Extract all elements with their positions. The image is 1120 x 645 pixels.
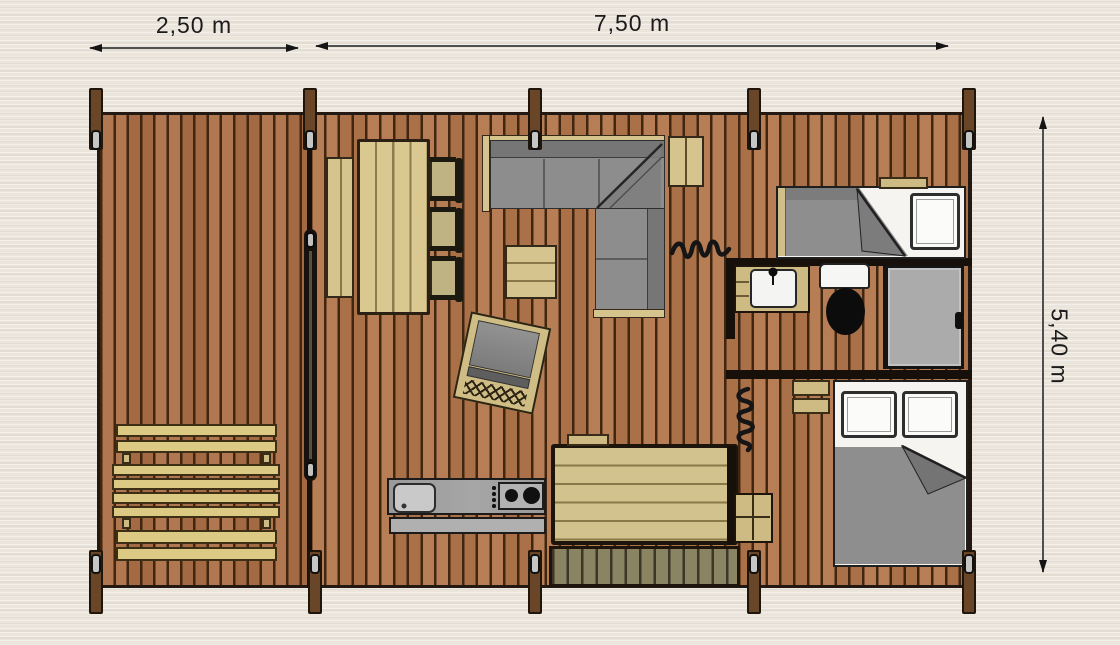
sofa-frame-end [593,309,665,318]
chair-arm [430,157,456,162]
table-slat [112,492,280,504]
door-handle [306,462,315,478]
door-rail [309,251,312,459]
post-bracket [964,554,974,574]
dining-bench [326,157,354,298]
corner-sofa-chaise [595,209,665,311]
pillow [841,391,897,438]
post [747,550,761,614]
dining-chair [430,160,461,198]
bed-headboard [778,188,786,256]
hob-knob [492,486,496,490]
chair-arm [430,196,456,201]
wall-cabinet [668,136,704,187]
arrow-right-icon [936,42,949,50]
post-bracket [310,554,320,574]
arrow-left-icon [89,44,102,52]
picnic-support [262,453,271,464]
table-slat-line [507,280,555,282]
bench-seam [340,159,342,296]
arrow-down-icon [1039,560,1047,573]
bench-slat [116,440,277,453]
bedside-shelf [879,177,928,189]
toilet [826,288,865,335]
dining-table [357,139,430,315]
floor-plan: 2,50 m 7,50 m 5,40 m [0,0,1120,645]
depth-label: 5,40 m [1046,291,1073,403]
washstand [734,265,810,313]
washstand-slat [736,295,749,297]
burner [505,489,518,502]
corner-sofa [490,140,665,209]
post [89,88,103,150]
bench-slat [116,424,277,437]
table-slat [112,478,280,490]
deck-width-label: 2,50 m [90,12,298,39]
cushion-seam [596,258,647,260]
dining-chair [430,259,461,297]
double-bed [833,380,968,567]
chair-arm [430,256,456,261]
wash-basin [750,269,797,308]
wardrobe-divider [736,516,770,518]
post-bracket [749,130,759,150]
bench-slat [116,547,277,561]
post-bracket [749,554,759,574]
sliding-door [304,229,317,481]
picnic-table [112,424,280,564]
chair-back [455,257,463,302]
post [747,88,761,150]
post-bracket [91,554,101,574]
post-bracket [530,130,540,150]
door-handle [306,232,315,248]
cabinet-divider [685,138,687,185]
picnic-support [262,518,271,529]
bedside-shelf [792,380,830,414]
shelf-box [792,380,830,396]
chair-back [455,208,463,253]
interior-width-dimension-line [316,45,948,47]
arrow-left-icon [315,42,328,50]
toilet-cistern [819,263,870,289]
single-bed [776,186,966,259]
post [962,88,976,150]
cushion-seam [598,159,600,208]
chair-back [455,158,463,203]
washstand-slat [736,281,749,283]
deck-width-dimension-line [90,47,298,49]
chair-arm [430,246,456,251]
sofa-frame-left [482,135,490,212]
hob-knob [492,492,496,496]
bathroom-bottom-wall [726,370,972,379]
post-bracket [964,130,974,150]
shower [883,265,964,369]
post [528,88,542,150]
bench-slat [116,530,277,544]
post-bracket [91,130,101,150]
wardrobe [734,493,773,543]
shower-door-handle [955,312,963,329]
bed-blanket [786,188,908,256]
sofa-backrest [647,209,664,309]
table-slat [112,506,280,518]
post [528,550,542,614]
picnic-support [122,453,131,464]
arrow-up-icon [1039,116,1047,129]
post [303,88,317,150]
post-bracket [530,554,540,574]
chair-arm [430,295,456,300]
kitchen-sink [393,483,436,513]
chair-arm [430,207,456,212]
pillow [910,193,960,250]
post [89,550,103,614]
bed-blanket [835,447,965,564]
pillow [902,391,958,438]
cushion-seam [543,159,545,208]
interior-width-label: 7,50 m [316,10,948,37]
table-tab [567,434,609,446]
large-table [551,444,738,545]
hob-knob [492,498,496,502]
sofa-backrest [491,141,664,158]
doormat [549,546,740,587]
post-bracket [305,130,315,150]
shelf-box [792,398,830,414]
depth-dimension-line [1042,117,1044,572]
kitchen-shelf [389,517,546,534]
coffee-table [505,245,557,299]
dining-chair [430,210,461,248]
arrow-right-icon [286,44,299,52]
table-slat [112,464,280,476]
post [308,550,322,614]
hob [498,482,544,510]
picnic-support [122,518,131,529]
burner [523,487,540,504]
hob-knob [492,504,496,508]
post [962,550,976,614]
table-slat-line [507,262,555,264]
